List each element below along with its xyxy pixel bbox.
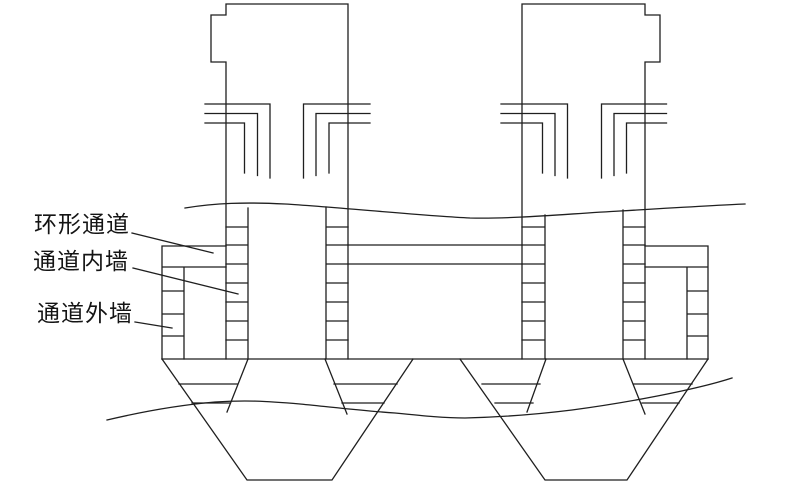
inner-wall-right-tower-left — [522, 215, 545, 359]
left-pylon-anchor-brackets-left — [205, 104, 270, 178]
leader-outer-wall — [135, 322, 172, 328]
label-annular-channel: 环形通道 — [34, 213, 130, 237]
upper-ground-line — [185, 203, 745, 218]
section-drawing — [0, 0, 804, 483]
inner-wall-left-tower-right — [326, 207, 348, 359]
leader-lines — [132, 233, 238, 328]
label-channel-inner-wall: 通道内墙 — [33, 250, 129, 274]
right-pylon — [501, 4, 667, 359]
leader-annular-channel — [132, 233, 213, 253]
left-caisson-outer — [162, 359, 413, 480]
left-pylon-anchor-brackets-right — [304, 104, 371, 178]
left-caisson-inner-faces — [227, 359, 347, 414]
right-caisson-wall-rungs — [482, 384, 692, 403]
right-caisson — [460, 359, 708, 480]
right-caisson-inner-faces — [527, 359, 645, 414]
inner-wall-right-tower-right — [623, 210, 645, 359]
channel-inner-walls — [226, 207, 645, 359]
right-pylon-outline — [522, 4, 660, 359]
right-pylon-anchor-brackets-right — [602, 104, 667, 178]
right-caisson-outer — [460, 359, 708, 480]
outer-wall-right — [645, 246, 708, 359]
left-caisson — [162, 359, 413, 480]
leader-inner-wall — [133, 268, 238, 294]
left-pylon-outline — [211, 4, 348, 359]
outer-wall-left — [162, 246, 226, 359]
left-caisson-wall-rungs — [179, 384, 397, 403]
diagram-canvas: 环形通道 通道内墙 通道外墙 — [0, 0, 804, 483]
right-pylon-anchor-brackets-left — [501, 104, 568, 178]
label-channel-outer-wall: 通道外墙 — [37, 302, 133, 326]
mid-slab-lines — [348, 245, 522, 264]
inner-wall-left-tower-left — [226, 208, 248, 359]
left-pylon — [205, 4, 370, 359]
